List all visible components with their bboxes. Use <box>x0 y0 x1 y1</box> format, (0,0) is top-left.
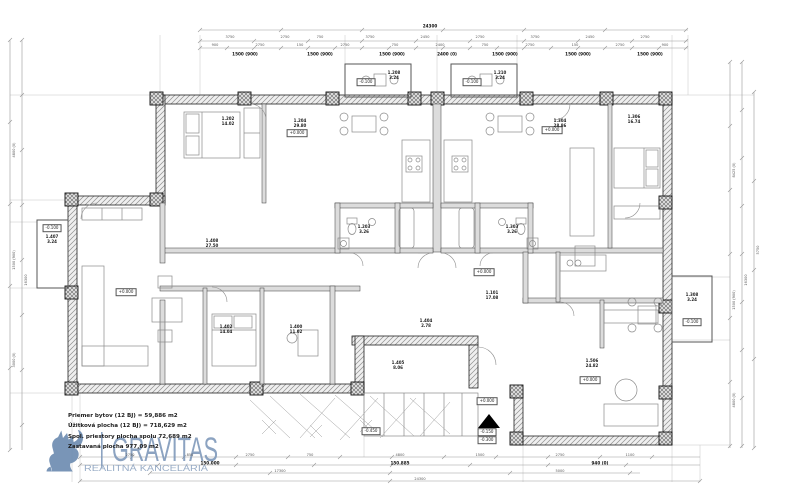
exterior-walls <box>68 95 672 445</box>
dining-set <box>486 113 534 135</box>
entrance-stairs <box>250 393 478 440</box>
entrance-triangle-icon <box>478 414 500 428</box>
bed <box>614 148 660 188</box>
summary-line: Spol. priestory plocha spolu 72,689 m2 <box>68 432 192 442</box>
floorplan-sheet: GRAVITAS REALITNÁ KANCELÁRIA 24300375027… <box>0 0 800 497</box>
dining-set <box>340 113 388 135</box>
bed <box>184 112 240 158</box>
kitchen <box>444 140 472 202</box>
bed <box>212 314 256 366</box>
kitchen <box>560 255 606 271</box>
summary-line: Priemer bytov (12 BJ) = 59,886 m2 <box>68 411 192 421</box>
summary-line: Zastavaná plocha 977,09 m2 <box>68 442 192 452</box>
summary-line: Úžitková plocha (12 BJ) = 718,629 m2 <box>68 421 192 431</box>
area-summary: Priemer bytov (12 BJ) = 59,886 m2 Úžitko… <box>68 411 192 452</box>
kitchen <box>402 140 430 202</box>
watermark-tagline: REALITNÁ KANCELÁRIA <box>84 463 208 473</box>
